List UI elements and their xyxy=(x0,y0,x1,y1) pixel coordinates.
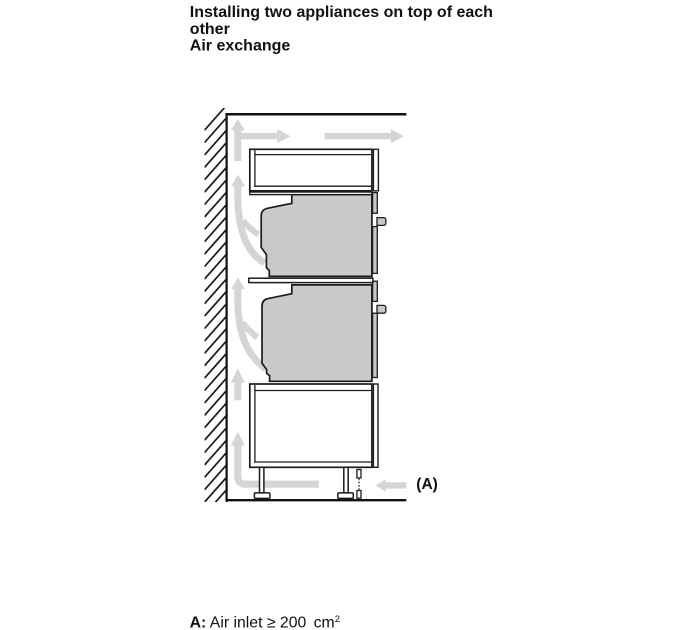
svg-text:Air exchange: Air exchange xyxy=(190,37,291,54)
svg-text:other: other xyxy=(190,21,230,38)
svg-text:(A): (A) xyxy=(416,476,438,493)
svg-text:A: Air inlet ≥ 200 cm2: A: Air inlet ≥ 200 cm2 xyxy=(190,614,340,630)
svg-text:Installing two appliances on t: Installing two appliances on top of each xyxy=(190,4,493,21)
